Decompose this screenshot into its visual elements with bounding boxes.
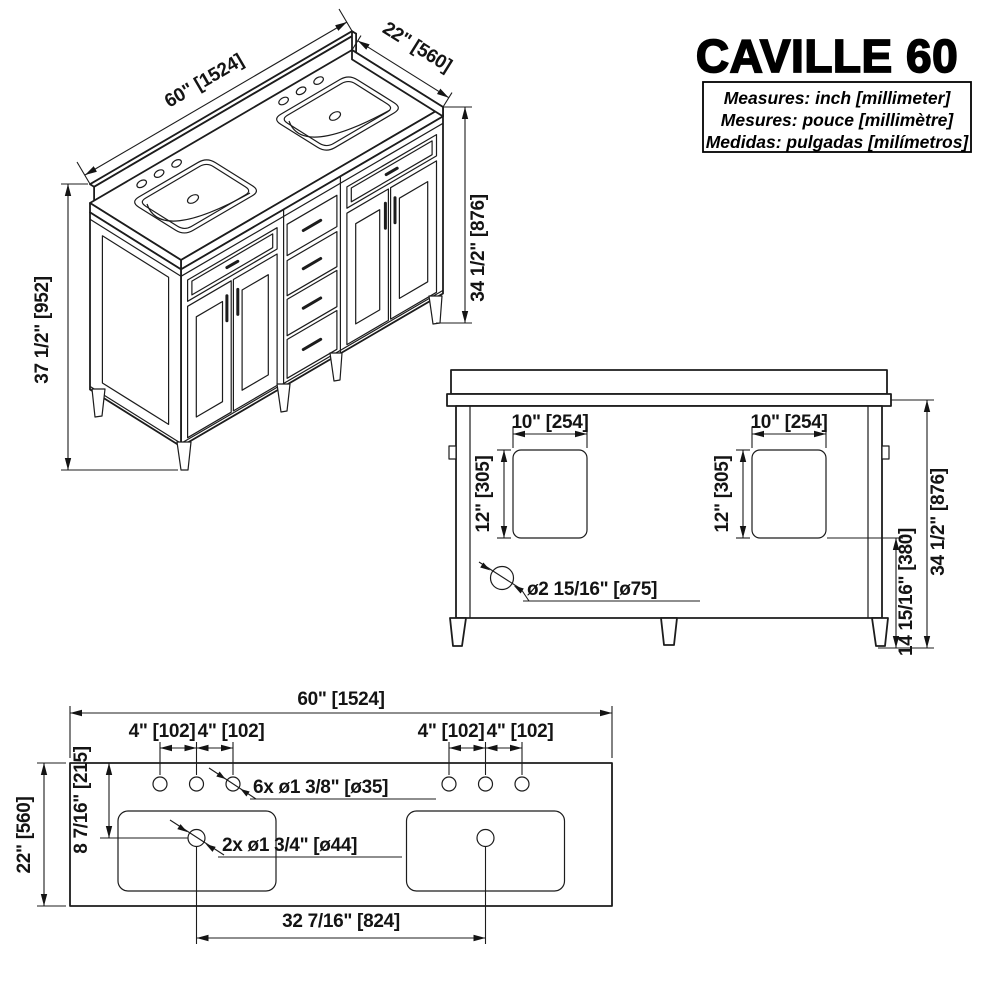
dim-floor-to-cutout: 14 15/16" [380]	[896, 528, 917, 656]
drawer-bank	[287, 195, 337, 378]
dim-faucet-holes: 6x ø1 3/8" [ø35]	[253, 777, 388, 798]
side-tab	[449, 446, 456, 459]
dim-spacing-2: 4" [102]	[198, 721, 265, 742]
rear-view: 10" [254] 10" [254] 12" [305] 12" [305] …	[447, 370, 949, 656]
plumbing-cutout-right	[752, 450, 826, 538]
dim-drain-holes: 2x ø1 3/4" [ø44]	[222, 835, 357, 856]
dim-drain-spacing: 32 7/16" [824]	[282, 911, 400, 932]
dim-rear-height: 34 1/2" [876]	[928, 468, 949, 576]
legend-line-fr: Mesures: pouce [millimètre]	[721, 110, 955, 130]
countertop-edge	[447, 394, 891, 406]
plan-view: 60" [1524] 22" [560] 8 7/16" [215] 4" [1…	[14, 689, 612, 944]
dim-spacing-4: 4" [102]	[487, 721, 554, 742]
dim-spacing-1: 4" [102]	[129, 721, 196, 742]
legend-box: Measures: inch [millimeter] Mesures: pou…	[703, 82, 971, 152]
leg	[661, 618, 677, 645]
page-title: CAVILLE 60	[696, 30, 958, 82]
dim-cutout-width-right: 10" [254]	[750, 412, 827, 433]
backsplash	[451, 370, 887, 394]
legend-line-en: Measures: inch [millimeter]	[724, 88, 952, 108]
dim-iso-depth: 22" [560]	[379, 18, 455, 77]
dim-back-to-drain: 8 7/16" [215]	[71, 746, 92, 854]
dim-cutout-height-left: 12" [305]	[473, 455, 494, 532]
leg	[330, 353, 342, 381]
side-tab	[882, 446, 889, 459]
leg	[92, 389, 105, 417]
dim-plan-depth: 22" [560]	[14, 796, 35, 873]
leg	[872, 618, 888, 646]
dim-iso-counter-height: 34 1/2" [876]	[468, 194, 489, 302]
dim-plan-width: 60" [1524]	[297, 689, 384, 710]
dim-drain-hole: ø2 15/16" [ø75]	[527, 579, 657, 600]
leg	[450, 618, 466, 646]
dim-spacing-3: 4" [102]	[418, 721, 485, 742]
dim-iso-total-height: 37 1/2" [952]	[32, 276, 53, 384]
vanity-drawing: CAVILLE 60 Measures: inch [millimeter] M…	[0, 0, 1000, 1000]
leg	[277, 384, 290, 412]
leg	[177, 442, 191, 470]
dim-cutout-width-left: 10" [254]	[511, 412, 588, 433]
leg	[429, 296, 442, 324]
dim-cutout-height-right: 12" [305]	[712, 455, 733, 532]
plumbing-cutout-left	[513, 450, 587, 538]
legend-line-es: Medidas: pulgadas [milímetros]	[706, 132, 970, 152]
technical-drawing-page: CAVILLE 60 Measures: inch [millimeter] M…	[0, 0, 1000, 1000]
isometric-view: 60" [1524] 22" [560] 34 1/2" [876] 37 1/…	[32, 9, 489, 470]
